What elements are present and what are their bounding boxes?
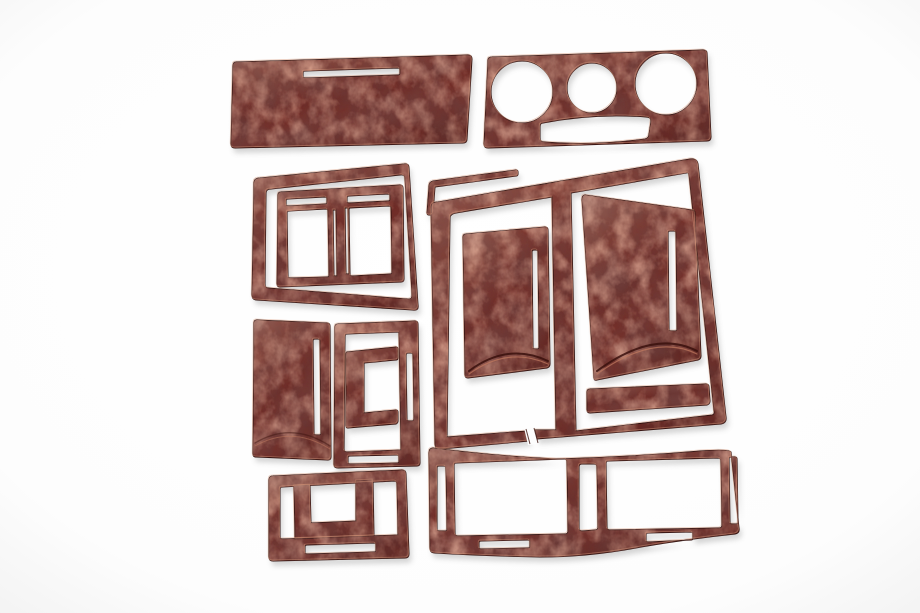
product-photo	[0, 0, 920, 613]
trim-kit-illustration	[0, 0, 920, 613]
